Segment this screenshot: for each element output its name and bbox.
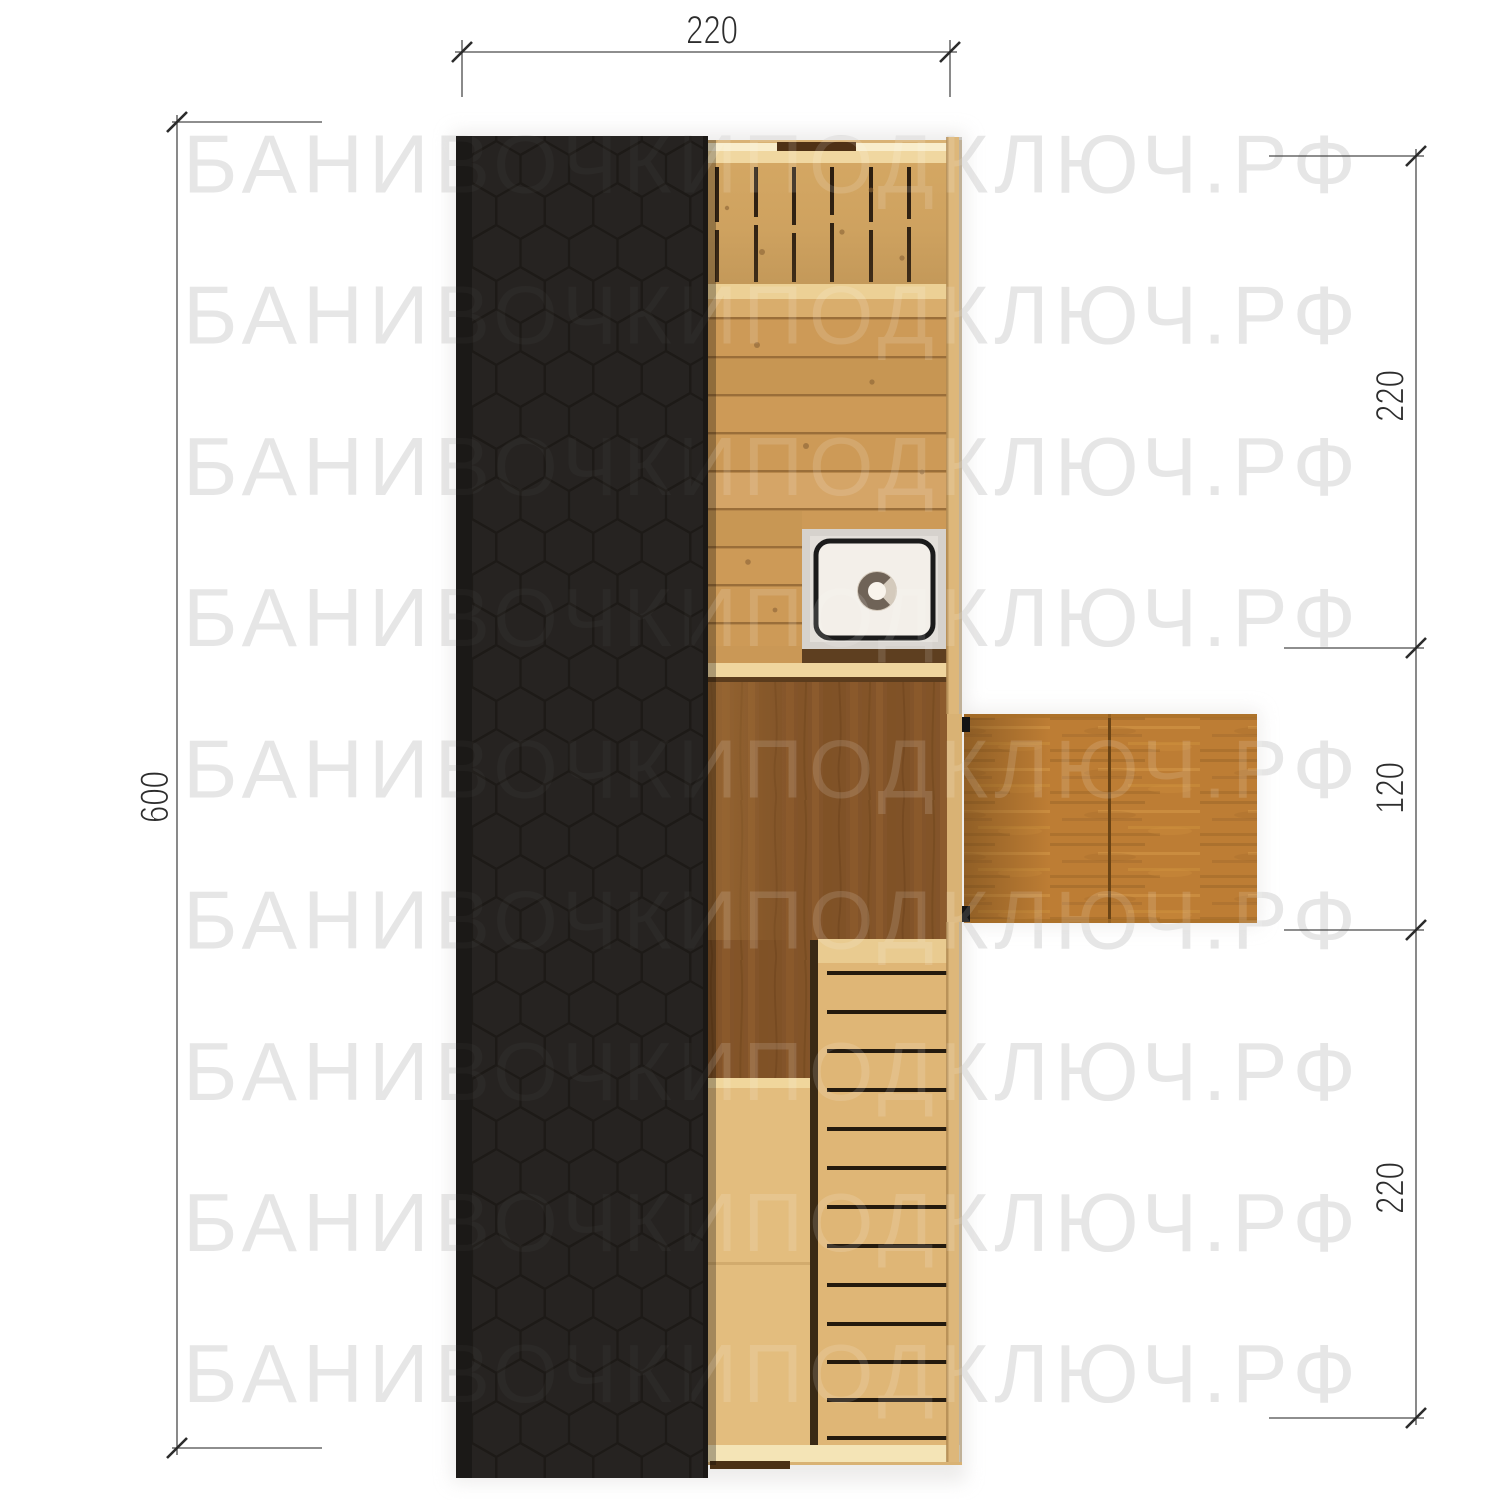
- svg-text:600: 600: [132, 771, 177, 823]
- svg-text:220: 220: [1368, 1162, 1413, 1214]
- svg-text:220: 220: [1368, 370, 1413, 422]
- svg-text:220: 220: [686, 8, 738, 53]
- svg-text:120: 120: [1368, 762, 1413, 814]
